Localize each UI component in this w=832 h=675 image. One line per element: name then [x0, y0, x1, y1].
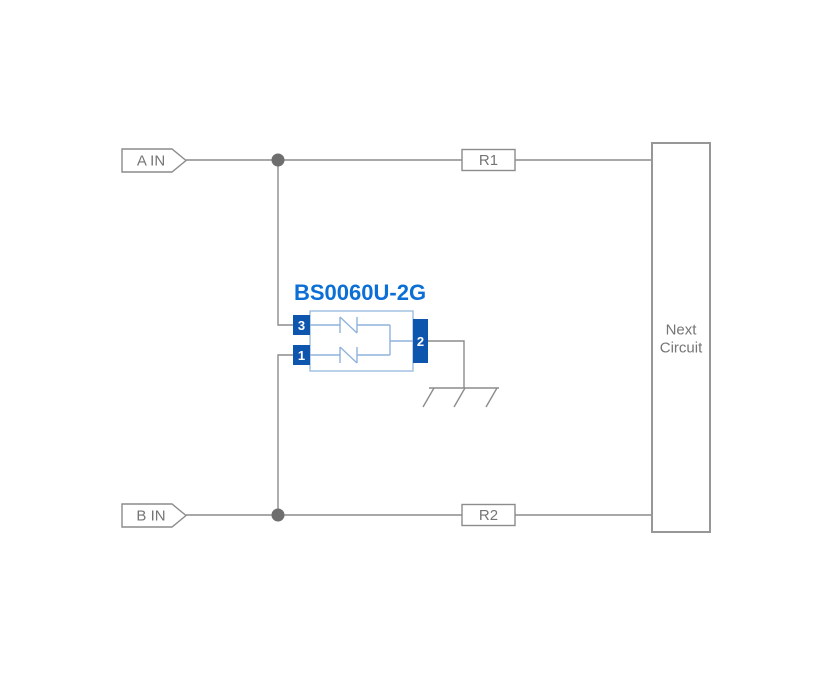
wire-pin2-to-ground: [428, 341, 464, 388]
next-circuit: Next Circuit: [652, 143, 710, 532]
input-tag-b-in: B IN: [122, 504, 186, 527]
ground-slash-1: [423, 388, 434, 407]
pin-1-label: 1: [298, 348, 305, 363]
next-circuit-label-line2: Circuit: [660, 340, 703, 357]
junction-dot-a: [272, 154, 285, 167]
ground-slash-2: [454, 388, 465, 407]
component-title: BS0060U-2G: [294, 280, 426, 305]
resistor-r1-label: R1: [479, 152, 498, 169]
input-tag-a-in: A IN: [122, 149, 186, 172]
next-circuit-label-line1: Next: [666, 322, 698, 339]
b-in-label: B IN: [136, 508, 165, 525]
circuit-diagram-canvas: A IN B IN R1 R2 Next Circuit BS0060U-2G: [0, 0, 832, 675]
resistor-r2: R2: [462, 505, 515, 526]
wire-b-junction-to-pin1: [278, 355, 293, 515]
pin-2-label: 2: [417, 334, 424, 349]
ground-slash-3: [486, 388, 497, 407]
a-in-label: A IN: [137, 153, 165, 170]
resistor-r1: R1: [462, 150, 515, 171]
resistor-r2-label: R2: [479, 507, 498, 524]
pin-3-label: 3: [298, 318, 305, 333]
circuit-diagram: A IN B IN R1 R2 Next Circuit BS0060U-2G: [0, 0, 832, 675]
wire-a-junction-to-pin3: [278, 160, 293, 325]
junction-dot-b: [272, 509, 285, 522]
ground-symbol: [423, 388, 499, 407]
esd-protection-component: BS0060U-2G: [293, 280, 428, 371]
